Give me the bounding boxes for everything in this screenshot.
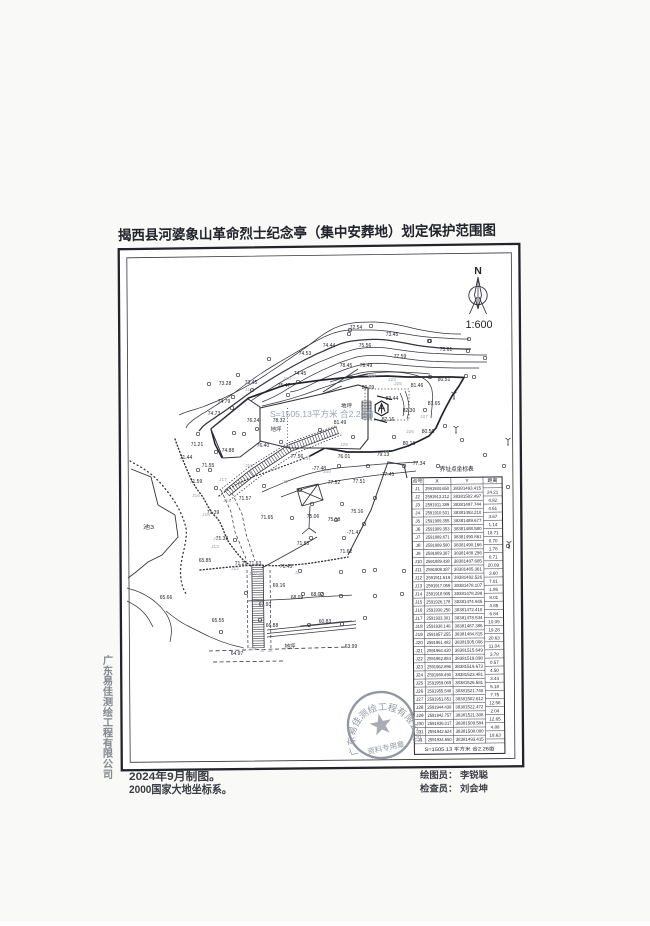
svg-text:J23: J23 bbox=[388, 377, 396, 383]
svg-text:38381478.298: 38381478.298 bbox=[454, 591, 483, 596]
svg-text:80.51: 80.51 bbox=[438, 377, 451, 383]
svg-text:7.01: 7.01 bbox=[489, 579, 498, 584]
svg-text:J11: J11 bbox=[213, 536, 221, 542]
svg-text:7.75: 7.75 bbox=[490, 692, 499, 697]
svg-text:2591934.650: 2591934.650 bbox=[428, 737, 453, 742]
svg-text:J24: J24 bbox=[416, 672, 424, 677]
svg-text:38381519.673: 38381519.673 bbox=[455, 664, 484, 669]
svg-text:J20: J20 bbox=[415, 640, 423, 645]
svg-text:J22: J22 bbox=[416, 656, 424, 661]
svg-text:2591889.387: 2591889.387 bbox=[426, 551, 451, 556]
svg-text:广: 广 bbox=[103, 654, 113, 667]
svg-text:38381485.361: 38381485.361 bbox=[454, 567, 483, 572]
svg-text:74.73: 74.73 bbox=[208, 411, 221, 417]
svg-text:78.49: 78.49 bbox=[360, 363, 373, 369]
svg-text:6.84: 6.84 bbox=[489, 611, 498, 616]
svg-text:J13: J13 bbox=[211, 544, 219, 550]
svg-text:71.57: 71.57 bbox=[239, 496, 252, 502]
svg-text:82.30: 82.30 bbox=[403, 408, 416, 414]
svg-text:J5: J5 bbox=[415, 519, 420, 524]
svg-text:检查员： 刘会坤: 检查员： 刘会坤 bbox=[420, 783, 488, 794]
svg-text:J1: J1 bbox=[415, 486, 420, 491]
svg-text:38381487.685: 38381487.685 bbox=[454, 558, 483, 563]
svg-text:J20: J20 bbox=[283, 376, 291, 382]
svg-text:2591960.490: 2591960.490 bbox=[427, 672, 452, 677]
svg-text:67.93: 67.93 bbox=[259, 602, 272, 608]
svg-text:12.56: 12.56 bbox=[489, 700, 501, 705]
svg-text:J18: J18 bbox=[415, 624, 423, 629]
svg-text:1.14: 1.14 bbox=[489, 522, 498, 527]
svg-text:81.49: 81.49 bbox=[334, 420, 347, 426]
svg-text:77.51: 77.51 bbox=[353, 479, 366, 485]
svg-text:2591955.548: 2591955.548 bbox=[427, 688, 452, 693]
svg-text:38381490.166: 38381490.166 bbox=[454, 542, 483, 547]
svg-text:J7: J7 bbox=[416, 535, 421, 540]
svg-text:38381508.000: 38381508.000 bbox=[456, 729, 485, 734]
svg-text:76.01: 76.01 bbox=[338, 454, 351, 460]
svg-text:73.28: 73.28 bbox=[219, 381, 232, 387]
svg-text:2591917.059: 2591917.059 bbox=[426, 583, 451, 588]
svg-text:J12: J12 bbox=[231, 566, 239, 572]
svg-text:地坪: 地坪 bbox=[271, 425, 282, 433]
svg-text:38381488.580: 38381488.580 bbox=[453, 526, 482, 531]
svg-text:J4: J4 bbox=[415, 510, 420, 515]
svg-text:公: 公 bbox=[103, 759, 114, 771]
svg-text:38381482.526: 38381482.526 bbox=[454, 575, 483, 580]
svg-text:测: 测 bbox=[103, 695, 113, 708]
svg-text:程: 程 bbox=[103, 727, 114, 740]
svg-text:3.60: 3.60 bbox=[489, 571, 498, 576]
svg-text:80.16: 80.16 bbox=[403, 441, 416, 447]
svg-text:38381509.584: 38381509.584 bbox=[456, 720, 485, 725]
svg-text:71.62: 71.62 bbox=[340, 549, 353, 555]
svg-text:J1: J1 bbox=[282, 479, 287, 485]
svg-text:38381493.210: 38381493.210 bbox=[453, 510, 482, 515]
svg-text:2591930.250: 2591930.250 bbox=[426, 607, 451, 612]
svg-text:J31: J31 bbox=[303, 456, 311, 462]
svg-text:2024年9月制图。: 2024年9月制图。 bbox=[129, 769, 221, 783]
svg-text:38381521.740: 38381521.740 bbox=[455, 688, 484, 693]
svg-text:2591962.884: 2591962.884 bbox=[427, 656, 452, 661]
svg-text:2591909.355: 2591909.355 bbox=[425, 518, 450, 523]
svg-text:J28: J28 bbox=[381, 449, 389, 455]
svg-text:38381493.415: 38381493.415 bbox=[453, 486, 482, 491]
svg-text:2591909.387: 2591909.387 bbox=[426, 567, 451, 572]
svg-text:J16: J16 bbox=[192, 493, 200, 499]
svg-text:J27: J27 bbox=[420, 414, 428, 420]
svg-text:J21: J21 bbox=[415, 648, 423, 653]
svg-text:38381493.415: 38381493.415 bbox=[456, 737, 485, 742]
svg-text:J19: J19 bbox=[248, 646, 256, 652]
svg-text:66.88: 66.88 bbox=[266, 623, 279, 629]
svg-text:77.45: 77.45 bbox=[382, 472, 395, 478]
svg-text:12.65: 12.65 bbox=[489, 716, 501, 721]
svg-text:2591934.650: 2591934.650 bbox=[425, 486, 450, 491]
svg-text:20.09: 20.09 bbox=[488, 563, 500, 568]
svg-text:J16: J16 bbox=[415, 608, 423, 613]
svg-text:J3: J3 bbox=[415, 502, 420, 507]
svg-text:N: N bbox=[474, 265, 482, 277]
svg-text:18.63: 18.63 bbox=[490, 733, 502, 738]
svg-text:78.45: 78.45 bbox=[340, 363, 353, 369]
svg-text:68.02: 68.02 bbox=[311, 592, 324, 598]
svg-text:10.09: 10.09 bbox=[488, 619, 500, 624]
svg-text:J26: J26 bbox=[416, 689, 424, 694]
svg-text:38381526.581: 38381526.581 bbox=[455, 680, 484, 685]
svg-text:2591909.353: 2591909.353 bbox=[425, 526, 450, 531]
svg-text:71.65: 71.65 bbox=[261, 515, 274, 521]
svg-text:71.59: 71.59 bbox=[190, 479, 203, 485]
svg-text:60.83: 60.83 bbox=[319, 619, 332, 625]
svg-text:74.79: 74.79 bbox=[218, 399, 231, 405]
svg-text:J10: J10 bbox=[249, 571, 257, 577]
svg-text:J22: J22 bbox=[368, 373, 376, 379]
svg-text:J26: J26 bbox=[406, 429, 414, 435]
svg-text:38381478.534: 38381478.534 bbox=[454, 615, 483, 620]
svg-text:3.44: 3.44 bbox=[490, 676, 499, 681]
svg-text:75.06: 75.06 bbox=[307, 514, 320, 520]
svg-text:J19: J19 bbox=[415, 632, 423, 637]
svg-text:2591942.757: 2591942.757 bbox=[427, 713, 452, 718]
svg-text:J29: J29 bbox=[340, 442, 348, 448]
svg-text:73.45: 73.45 bbox=[386, 332, 399, 338]
svg-text:2591889.580: 2591889.580 bbox=[426, 543, 451, 548]
svg-text:易: 易 bbox=[103, 676, 113, 688]
svg-text:1:600: 1:600 bbox=[465, 319, 492, 331]
svg-text:64.97: 64.97 bbox=[231, 651, 244, 657]
svg-text:1.86: 1.86 bbox=[489, 587, 498, 592]
svg-text:74.45: 74.45 bbox=[294, 371, 307, 377]
svg-text:J3: J3 bbox=[294, 570, 299, 576]
svg-text:3.78: 3.78 bbox=[490, 652, 499, 657]
svg-text:点号: 点号 bbox=[412, 479, 422, 485]
svg-text:65.55: 65.55 bbox=[212, 618, 225, 624]
svg-text:2591913.212: 2591913.212 bbox=[425, 494, 450, 499]
svg-text:池3: 池3 bbox=[143, 523, 154, 531]
svg-text:J15: J15 bbox=[415, 600, 423, 605]
svg-text:75.18: 75.18 bbox=[328, 517, 341, 523]
svg-text:4.82: 4.82 bbox=[488, 498, 497, 503]
svg-text:工: 工 bbox=[103, 718, 113, 729]
svg-text:J2: J2 bbox=[415, 494, 420, 499]
svg-text:38381515.649: 38381515.649 bbox=[455, 648, 484, 653]
svg-text:68.09: 68.09 bbox=[291, 595, 304, 601]
svg-text:-71.47: -71.47 bbox=[347, 530, 361, 536]
svg-text:地坪: 地坪 bbox=[285, 642, 296, 650]
svg-text:75.56: 75.56 bbox=[359, 343, 372, 349]
svg-text:24.21: 24.21 bbox=[487, 490, 499, 495]
svg-text:0.70: 0.70 bbox=[489, 538, 498, 543]
svg-text:2591962.896: 2591962.896 bbox=[427, 664, 452, 669]
svg-text:1.78: 1.78 bbox=[489, 546, 498, 551]
svg-text:J13: J13 bbox=[415, 583, 423, 588]
svg-text:J9: J9 bbox=[259, 648, 264, 654]
svg-text:2591926.178: 2591926.178 bbox=[426, 599, 451, 604]
svg-text:38381521.308: 38381521.308 bbox=[455, 712, 484, 717]
svg-text:71.85: 71.85 bbox=[297, 541, 310, 547]
svg-text:20.63: 20.63 bbox=[488, 635, 500, 640]
svg-text:80.56: 80.56 bbox=[422, 429, 435, 435]
svg-text:J14: J14 bbox=[415, 591, 423, 596]
svg-text:81.65: 81.65 bbox=[428, 401, 441, 407]
svg-text:2591938.148: 2591938.148 bbox=[426, 624, 451, 629]
svg-text:司: 司 bbox=[103, 769, 113, 781]
svg-text:77.52: 77.52 bbox=[328, 480, 341, 486]
svg-text:74.44: 74.44 bbox=[323, 343, 336, 349]
svg-text:38381488.296: 38381488.296 bbox=[454, 550, 483, 555]
svg-text:S=1505.13平方米 合2.26亩: S=1505.13平方米 合2.26亩 bbox=[270, 409, 374, 419]
svg-text:81.46: 81.46 bbox=[411, 383, 424, 389]
svg-text:38381474.945: 38381474.945 bbox=[454, 599, 483, 604]
svg-text:绘: 绘 bbox=[103, 706, 114, 719]
svg-text:71.55: 71.55 bbox=[202, 463, 215, 469]
svg-text:38381497.744: 38381497.744 bbox=[453, 502, 482, 507]
svg-text:76.24: 76.24 bbox=[247, 418, 260, 424]
svg-text:2591951.851: 2591951.851 bbox=[427, 696, 452, 701]
svg-text:J29: J29 bbox=[416, 713, 424, 718]
svg-text:83.44: 83.44 bbox=[386, 396, 399, 402]
svg-text:J17: J17 bbox=[219, 477, 227, 483]
svg-text:38381484.815: 38381484.815 bbox=[455, 631, 484, 636]
svg-text:75.47: 75.47 bbox=[278, 383, 291, 389]
svg-text:2591964.420: 2591964.420 bbox=[427, 648, 452, 653]
svg-text:38381472.410: 38381472.410 bbox=[454, 607, 483, 612]
svg-text:J8: J8 bbox=[416, 543, 421, 548]
svg-text:38381522.472: 38381522.472 bbox=[455, 704, 484, 709]
svg-text:77.56: 77.56 bbox=[291, 454, 304, 460]
svg-text:J12: J12 bbox=[415, 575, 423, 580]
svg-text:J9: J9 bbox=[416, 551, 421, 556]
svg-text:38381489.677: 38381489.677 bbox=[453, 518, 482, 523]
svg-text:72.54: 72.54 bbox=[350, 325, 363, 331]
svg-text:38381502.612: 38381502.612 bbox=[455, 696, 484, 701]
svg-text:65.85: 65.85 bbox=[199, 558, 212, 564]
svg-text:71.44: 71.44 bbox=[180, 455, 193, 461]
svg-text:38381523.481: 38381523.481 bbox=[455, 672, 484, 677]
svg-text:J6: J6 bbox=[415, 527, 420, 532]
svg-text:有: 有 bbox=[103, 737, 113, 750]
svg-text:佳: 佳 bbox=[103, 685, 113, 698]
svg-text:J30: J30 bbox=[323, 469, 331, 475]
svg-text:38381490.861: 38381490.861 bbox=[454, 534, 483, 539]
svg-text:69.16: 69.16 bbox=[273, 583, 286, 589]
svg-text:65.66: 65.66 bbox=[160, 595, 173, 601]
svg-text:J19: J19 bbox=[245, 387, 253, 393]
svg-text:2591944.438: 2591944.438 bbox=[427, 705, 452, 710]
svg-text:2591911.389: 2591911.389 bbox=[425, 502, 450, 507]
svg-text:18.71: 18.71 bbox=[487, 530, 499, 535]
svg-text:0.71: 0.71 bbox=[489, 554, 498, 559]
svg-text:63.99: 63.99 bbox=[345, 644, 358, 650]
svg-text:4.88: 4.88 bbox=[491, 725, 500, 730]
svg-text:2591936.017: 2591936.017 bbox=[428, 721, 453, 726]
svg-text:38381478.107: 38381478.107 bbox=[454, 583, 483, 588]
svg-text:东: 东 bbox=[103, 664, 113, 677]
svg-text:0.57: 0.57 bbox=[490, 660, 499, 665]
svg-text:82.16: 82.16 bbox=[382, 417, 395, 423]
svg-text:5.18: 5.18 bbox=[490, 684, 499, 689]
svg-text:71.21: 71.21 bbox=[191, 442, 204, 448]
svg-text:76.40: 76.40 bbox=[257, 443, 270, 449]
svg-text:2591942.624: 2591942.624 bbox=[428, 729, 453, 734]
svg-text:8.01: 8.01 bbox=[489, 595, 498, 600]
svg-text:2000国家大地坐标系。: 2000国家大地坐标系。 bbox=[129, 782, 232, 796]
svg-text:38381505.006: 38381505.006 bbox=[455, 639, 484, 644]
svg-text:4.50: 4.50 bbox=[490, 668, 499, 673]
svg-text:J15: J15 bbox=[202, 512, 210, 518]
svg-text:2591933.301: 2591933.301 bbox=[426, 615, 451, 620]
svg-text:界址点坐标表: 界址点坐标表 bbox=[440, 464, 475, 473]
svg-text:J28: J28 bbox=[416, 705, 424, 710]
svg-text:2591957.255: 2591957.255 bbox=[427, 632, 452, 637]
svg-text:J23: J23 bbox=[416, 664, 424, 669]
svg-text:11.04: 11.04 bbox=[489, 644, 500, 649]
svg-text:71.63: 71.63 bbox=[249, 561, 262, 567]
svg-text:2591889.671: 2591889.671 bbox=[426, 534, 451, 539]
svg-text:38381487.386: 38381487.386 bbox=[454, 623, 483, 628]
svg-text:71.45: 71.45 bbox=[280, 564, 293, 570]
svg-text:38381502.497: 38381502.497 bbox=[453, 494, 482, 499]
svg-text:77.34: 77.34 bbox=[413, 461, 426, 467]
svg-text:J17: J17 bbox=[415, 616, 423, 621]
svg-text:4.85: 4.85 bbox=[489, 603, 498, 608]
svg-text:J27: J27 bbox=[416, 697, 424, 702]
svg-text:J10: J10 bbox=[415, 559, 423, 564]
svg-text:2.04: 2.04 bbox=[490, 708, 499, 713]
svg-text:77.59: 77.59 bbox=[394, 354, 407, 360]
svg-text:73.45: 73.45 bbox=[245, 380, 258, 386]
svg-text:75.16: 75.16 bbox=[351, 509, 364, 515]
svg-text:38381519.098: 38381519.098 bbox=[455, 656, 484, 661]
svg-text:J9: J9 bbox=[258, 572, 263, 578]
svg-text:2591918.905: 2591918.905 bbox=[426, 591, 451, 596]
svg-text:2591959.069: 2591959.069 bbox=[427, 680, 452, 685]
svg-text:2591911.619: 2591911.619 bbox=[426, 575, 451, 580]
svg-text:3.67: 3.67 bbox=[488, 514, 497, 519]
svg-text:J25: J25 bbox=[416, 681, 424, 686]
svg-text:J8: J8 bbox=[267, 648, 272, 654]
svg-text:19.28: 19.28 bbox=[488, 627, 500, 632]
svg-text:75.61: 75.61 bbox=[440, 347, 453, 353]
svg-text:绘图员： 李锐聪: 绘图员： 李锐聪 bbox=[420, 769, 488, 780]
svg-text:2591961.483: 2591961.483 bbox=[427, 640, 452, 645]
svg-text:2591889.438: 2591889.438 bbox=[426, 559, 451, 564]
svg-text:80.09: 80.09 bbox=[362, 385, 375, 391]
svg-text:J11: J11 bbox=[415, 567, 423, 572]
svg-text:J14: J14 bbox=[223, 498, 231, 504]
svg-text:J18: J18 bbox=[245, 463, 253, 469]
svg-text:4.61: 4.61 bbox=[488, 506, 497, 511]
svg-text:限: 限 bbox=[103, 748, 114, 760]
svg-text:74.88: 74.88 bbox=[222, 448, 235, 454]
svg-text:2591910.531: 2591910.531 bbox=[425, 510, 450, 515]
svg-text:74.53: 74.53 bbox=[299, 351, 312, 357]
